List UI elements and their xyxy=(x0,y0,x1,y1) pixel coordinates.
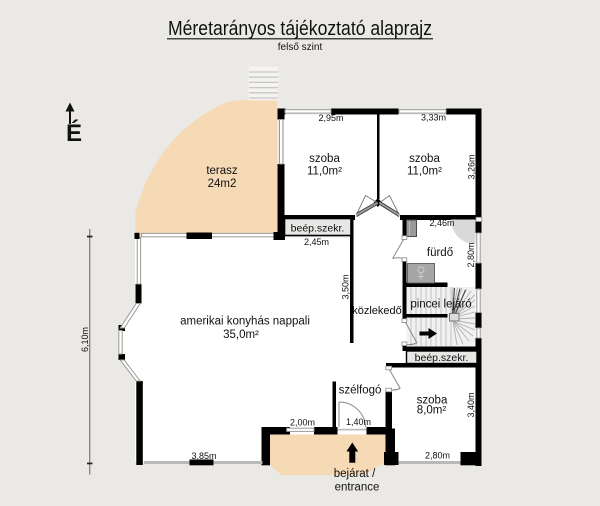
svg-text:3,50m: 3,50m xyxy=(341,274,351,299)
svg-text:6,10m: 6,10m xyxy=(80,327,90,352)
svg-text:35,0m²: 35,0m² xyxy=(223,329,259,341)
svg-text:szélfogó: szélfogó xyxy=(339,385,382,397)
svg-text:2,45m: 2,45m xyxy=(304,237,329,247)
svg-text:terasz: terasz xyxy=(206,165,238,177)
svg-text:8,0m²: 8,0m² xyxy=(417,405,447,417)
svg-text:szoba: szoba xyxy=(309,153,340,165)
svg-text:beép.szekr.: beép.szekr. xyxy=(291,223,345,235)
svg-text:felső szint: felső szint xyxy=(278,42,323,53)
svg-text:11,0m²: 11,0m² xyxy=(307,166,342,178)
svg-text:Méretarányos tájékoztató alapr: Méretarányos tájékoztató alaprajz xyxy=(168,18,432,40)
svg-text:2,00m: 2,00m xyxy=(290,418,315,428)
svg-text:3,26m: 3,26m xyxy=(467,154,477,179)
svg-text:3,40m: 3,40m xyxy=(466,392,476,417)
svg-text:beép.szekr.: beép.szekr. xyxy=(415,352,469,364)
svg-text:11,0m²: 11,0m² xyxy=(407,166,442,178)
svg-text:fürdő: fürdő xyxy=(427,247,453,259)
svg-text:bejárat /: bejárat / xyxy=(334,468,376,480)
svg-text:szoba: szoba xyxy=(409,153,440,165)
svg-text:1,40m: 1,40m xyxy=(346,417,371,427)
svg-text:24m2: 24m2 xyxy=(208,178,237,190)
svg-text:2,80m: 2,80m xyxy=(425,451,450,461)
svg-text:3,85m: 3,85m xyxy=(191,451,216,461)
svg-text:közlekedő: közlekedő xyxy=(352,305,402,317)
svg-text:2,95m: 2,95m xyxy=(318,113,343,123)
svg-text:entrance: entrance xyxy=(335,482,380,494)
svg-text:pincei lejáró: pincei lejáró xyxy=(410,299,471,311)
svg-text:2,80m: 2,80m xyxy=(466,242,476,267)
svg-text:3,33m: 3,33m xyxy=(421,113,446,123)
svg-text:2,46m: 2,46m xyxy=(429,218,454,228)
svg-text:amerikai konyhás nappali: amerikai konyhás nappali xyxy=(180,316,310,328)
svg-text:É: É xyxy=(66,119,82,147)
